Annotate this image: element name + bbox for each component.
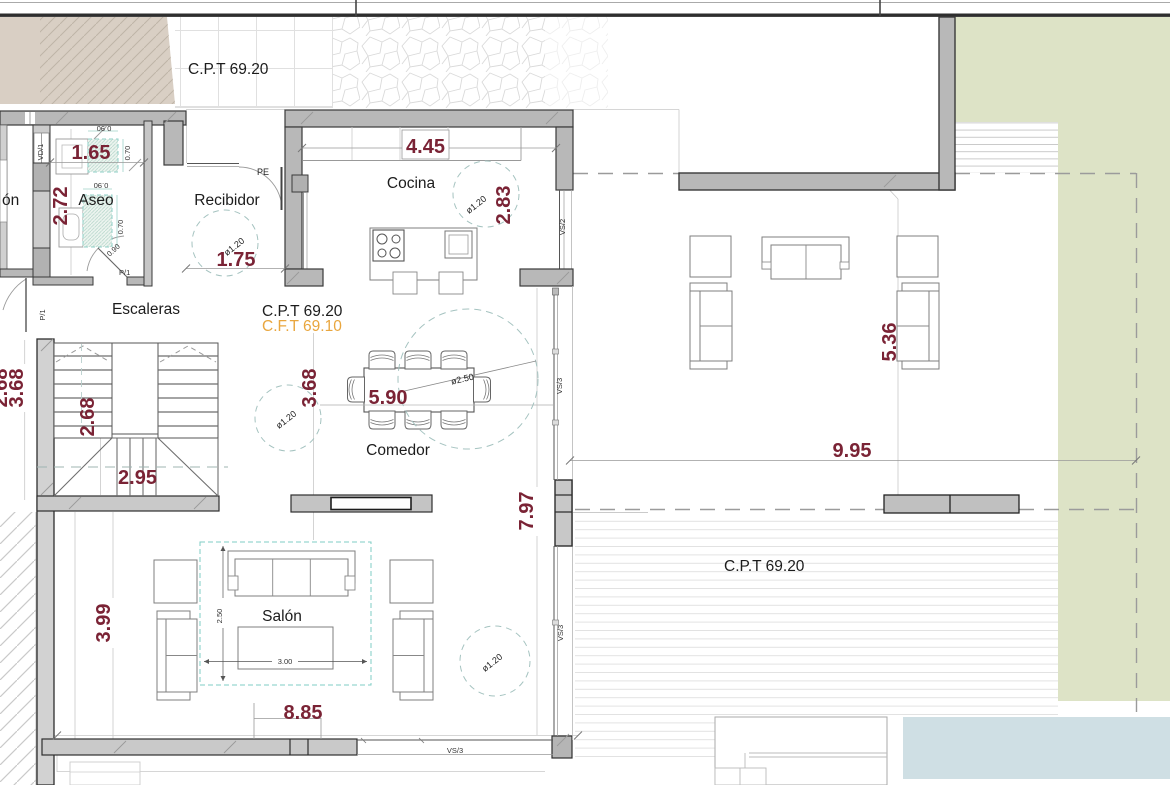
svg-text:C.F.T 69.10: C.F.T 69.10 — [262, 318, 342, 335]
svg-text:2.68: 2.68 — [77, 398, 99, 437]
svg-text:Escaleras: Escaleras — [112, 301, 180, 318]
svg-text:2.68: 2.68 — [0, 369, 12, 408]
svg-text:5.36: 5.36 — [879, 323, 901, 362]
svg-text:P/1: P/1 — [119, 268, 130, 277]
svg-text:2.83: 2.83 — [493, 186, 515, 225]
svg-text:8.85: 8.85 — [284, 702, 323, 724]
svg-text:0.70: 0.70 — [123, 146, 132, 161]
svg-text:2.50: 2.50 — [215, 609, 224, 624]
svg-text:Cocina: Cocina — [387, 175, 436, 192]
svg-text:0.90: 0.90 — [94, 181, 109, 190]
svg-text:5.90: 5.90 — [369, 387, 408, 409]
svg-text:1.75: 1.75 — [217, 249, 256, 271]
svg-text:2.95: 2.95 — [118, 467, 157, 489]
svg-text:Recibidor: Recibidor — [194, 192, 259, 209]
svg-text:VS/3: VS/3 — [555, 378, 564, 394]
svg-text:0.70: 0.70 — [116, 220, 125, 235]
svg-text:3.00: 3.00 — [278, 657, 293, 666]
svg-text:4.45: 4.45 — [406, 136, 445, 158]
svg-text:ón: ón — [2, 192, 19, 209]
svg-text:3.99: 3.99 — [93, 604, 115, 643]
svg-text:3.68: 3.68 — [299, 369, 321, 408]
svg-text:VS/2: VS/2 — [558, 219, 567, 235]
svg-text:Salón: Salón — [262, 608, 302, 625]
svg-text:0.90: 0.90 — [97, 124, 112, 133]
svg-text:9.95: 9.95 — [833, 440, 872, 462]
svg-text:1.65: 1.65 — [72, 142, 111, 164]
svg-text:C.P.T 69.20: C.P.T 69.20 — [724, 558, 805, 575]
svg-text:VS/3: VS/3 — [447, 746, 463, 755]
svg-text:VD/1: VD/1 — [36, 144, 45, 161]
svg-text:Comedor: Comedor — [366, 442, 430, 459]
svg-text:2.72: 2.72 — [50, 187, 72, 226]
svg-text:Aseo: Aseo — [78, 192, 113, 209]
svg-text:C.P.T 69.20: C.P.T 69.20 — [188, 61, 269, 78]
svg-text:7.97: 7.97 — [516, 492, 538, 531]
svg-text:PE: PE — [257, 167, 269, 177]
svg-text:VS/3: VS/3 — [556, 625, 565, 641]
svg-text:P/1: P/1 — [38, 309, 47, 320]
